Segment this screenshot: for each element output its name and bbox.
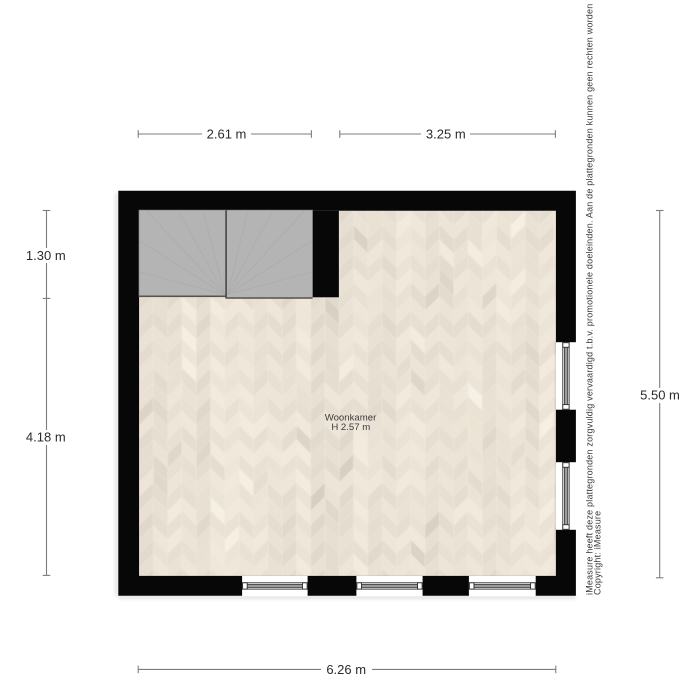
svg-text:H 2.57 m: H 2.57 m [331,422,370,433]
svg-text:2.61 m: 2.61 m [207,127,247,142]
svg-text:Copyright: iMeasure: Copyright: iMeasure [593,511,603,595]
svg-text:5.50 m: 5.50 m [640,388,680,403]
svg-text:iMeasure heeft deze plattegron: iMeasure heeft deze plattegronden zorgvu… [585,4,595,595]
svg-text:1.30 m: 1.30 m [26,248,66,263]
svg-text:3.25 m: 3.25 m [426,127,466,142]
svg-text:6.26 m: 6.26 m [326,662,366,677]
svg-text:4.18 m: 4.18 m [26,430,66,445]
